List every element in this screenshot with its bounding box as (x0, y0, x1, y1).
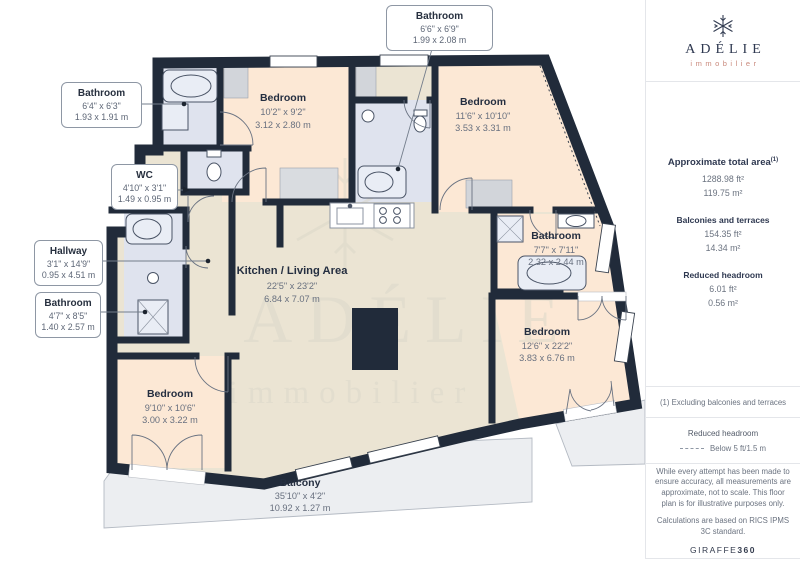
total-area-group: Approximate total area(1) 1288.98 ft² 11… (668, 157, 778, 200)
kitchen-living-imperial: 22'5" x 23'2" (267, 281, 317, 291)
bedroom-top-right-imperial: 11'6" x 10'10" (456, 111, 511, 121)
bathroom-right-metric: 2.32 x 2.44 m (528, 257, 584, 267)
callout-imperial: 4'10" x 3'1" (116, 183, 173, 194)
total-area-metric: 119.75 m² (668, 186, 778, 201)
sink-center (362, 110, 374, 122)
disclaimer-text: While every attempt has been made to ens… (646, 467, 800, 509)
total-area-imperial: 1288.98 ft² (668, 172, 778, 187)
balconies-metric: 14.34 m² (676, 241, 769, 256)
window-top-2 (380, 55, 428, 66)
giraffe360-credit: GIRAFFE360 (690, 545, 756, 555)
toilet-center-tank (414, 110, 427, 116)
balconies-label: Balconies and terraces (676, 215, 769, 225)
credit-suffix: 360 (737, 545, 756, 555)
kitchen-living-metric: 6.84 x 7.07 m (264, 294, 320, 304)
standard-text: Calculations are based on RICS IPMS 3C s… (646, 516, 800, 537)
info-sidebar: ADÉLIE immobilier Approximate total area… (645, 0, 800, 566)
balcony-metric: 10.92 x 1.27 m (270, 503, 331, 513)
shower-top-left (162, 104, 188, 130)
callout-title: Bathroom (40, 297, 96, 311)
balcony-label: Balcony (280, 477, 321, 489)
bedroom-bottom-right-label: Bedroom (524, 326, 570, 338)
reduced-group: Reduced headroom 6.01 ft² 0.56 m² (683, 270, 762, 311)
dashed-line-sample (680, 448, 704, 449)
bathroom-right-label: Bathroom (531, 230, 581, 242)
bedroom-bottom-right-imperial: 12'6" x 22'2" (522, 341, 572, 351)
bedroom-bottom-left-imperial: 9'10" x 10'6" (145, 403, 195, 413)
snowflake-icon (710, 13, 736, 39)
toilet-wc-tank (207, 150, 221, 157)
callout-title: WC (116, 169, 173, 183)
balcony-imperial: 35'10" x 4'2" (275, 491, 325, 501)
callout-title: Hallway (39, 245, 98, 259)
logo-section: ADÉLIE immobilier (645, 0, 800, 82)
callout-wc: WC 4'10" x 3'1" 1.49 x 0.95 m (111, 164, 178, 210)
callout-title: Bathroom (391, 10, 488, 24)
footnote-text: (1) Excluding balconies and terraces (660, 398, 786, 407)
footnote-section: (1) Excluding balconies and terraces (645, 387, 800, 418)
credit-brand: GIRAFFE (690, 545, 737, 555)
disclaimer-section: While every attempt has been made to ens… (645, 464, 800, 559)
legend-section: Reduced headroom Below 5 ft/1.5 m (645, 418, 800, 464)
bedroom-top-label: Bedroom (260, 92, 306, 104)
bedroom-bottom-left-label: Bedroom (147, 388, 193, 400)
callout-imperial: 6'4" x 6'3" (66, 101, 137, 112)
callout-imperial: 3'1" x 14'9" (39, 259, 98, 270)
brand-subtitle: immobilier (686, 59, 759, 68)
legend-title: Reduced headroom (688, 429, 758, 438)
stove (374, 204, 410, 228)
footnote-marker: (1) (771, 157, 778, 163)
areas-section: Approximate total area(1) 1288.98 ft² 11… (645, 82, 800, 387)
bathroom-right-imperial: 7'7" x 7'11" (534, 245, 579, 255)
callout-imperial: 4'7" x 8'5" (40, 311, 96, 322)
sink-mid-left (148, 273, 159, 284)
brand-name: ADÉLIE (680, 42, 766, 58)
callout-imperial: 6'6" x 6'9" (391, 24, 488, 35)
callout-metric: 1.40 x 2.57 m (40, 322, 96, 333)
callout-bathroom-mid-left: Bathroom 4'7" x 8'5" 1.40 x 2.57 m (35, 292, 101, 338)
callout-title: Bathroom (66, 87, 137, 101)
bedroom-top-imperial: 10'2" x 9'2" (260, 107, 305, 117)
bedroom-top-right-label: Bedroom (460, 96, 506, 108)
reduced-metric: 0.56 m² (683, 296, 762, 311)
balconies-imperial: 154.35 ft² (676, 227, 769, 242)
bedroom-bottom-right-metric: 3.83 x 6.76 m (519, 353, 575, 363)
total-area-label: Approximate total area (668, 158, 771, 169)
watermark-subtitle: immobilier (229, 375, 476, 411)
kitchen-living-label: Kitchen / Living Area (237, 265, 349, 277)
callout-bathroom-top-left: Bathroom 6'4" x 6'3" 1.93 x 1.91 m (61, 82, 142, 128)
window-top-1 (270, 56, 317, 67)
callout-hallway: Hallway 3'1" x 14'9" 0.95 x 4.51 m (34, 240, 103, 286)
sink-right-counter (558, 214, 594, 228)
callout-bathroom-top: Bathroom 6'6" x 6'9" 1.99 x 2.08 m (386, 5, 493, 51)
reduced-label: Reduced headroom (683, 270, 762, 280)
balconies-group: Balconies and terraces 154.35 ft² 14.34 … (676, 215, 769, 256)
toilet-wc (207, 163, 221, 181)
callout-metric: 1.49 x 0.95 m (116, 194, 173, 205)
legend-item: Below 5 ft/1.5 m (710, 444, 766, 453)
callout-metric: 1.99 x 2.08 m (391, 35, 488, 46)
floorplan-page: ADÉLIE immobilier (0, 0, 800, 566)
callout-metric: 0.95 x 4.51 m (39, 270, 98, 281)
bedroom-bottom-left-metric: 3.00 x 3.22 m (142, 415, 198, 425)
bedroom-top-metric: 3.12 x 2.80 m (255, 120, 311, 130)
callout-metric: 1.93 x 1.91 m (66, 112, 137, 123)
reduced-imperial: 6.01 ft² (683, 282, 762, 297)
toilet-center (414, 116, 426, 132)
bedroom-top-right-metric: 3.53 x 3.31 m (455, 123, 511, 133)
